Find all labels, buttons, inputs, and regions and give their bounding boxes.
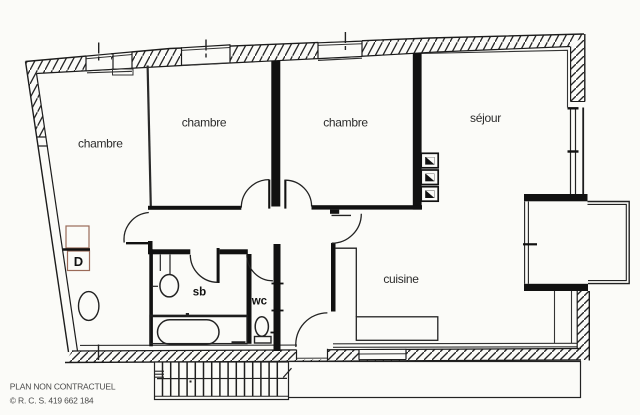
svg-text:cuisine: cuisine <box>383 272 419 286</box>
svg-text:D: D <box>74 254 83 269</box>
svg-text:sb: sb <box>193 287 206 299</box>
svg-text:PLAN NON CONTRACTUEL: PLAN NON CONTRACTUEL <box>10 382 116 392</box>
svg-text:chambre: chambre <box>182 116 227 130</box>
svg-text:© R. C. S. 419 662 184: © R. C. S. 419 662 184 <box>10 395 94 405</box>
svg-text:séjour: séjour <box>470 111 501 125</box>
svg-text:chambre: chambre <box>323 116 368 130</box>
svg-text:chambre: chambre <box>78 136 123 150</box>
svg-text:wc: wc <box>251 296 268 308</box>
